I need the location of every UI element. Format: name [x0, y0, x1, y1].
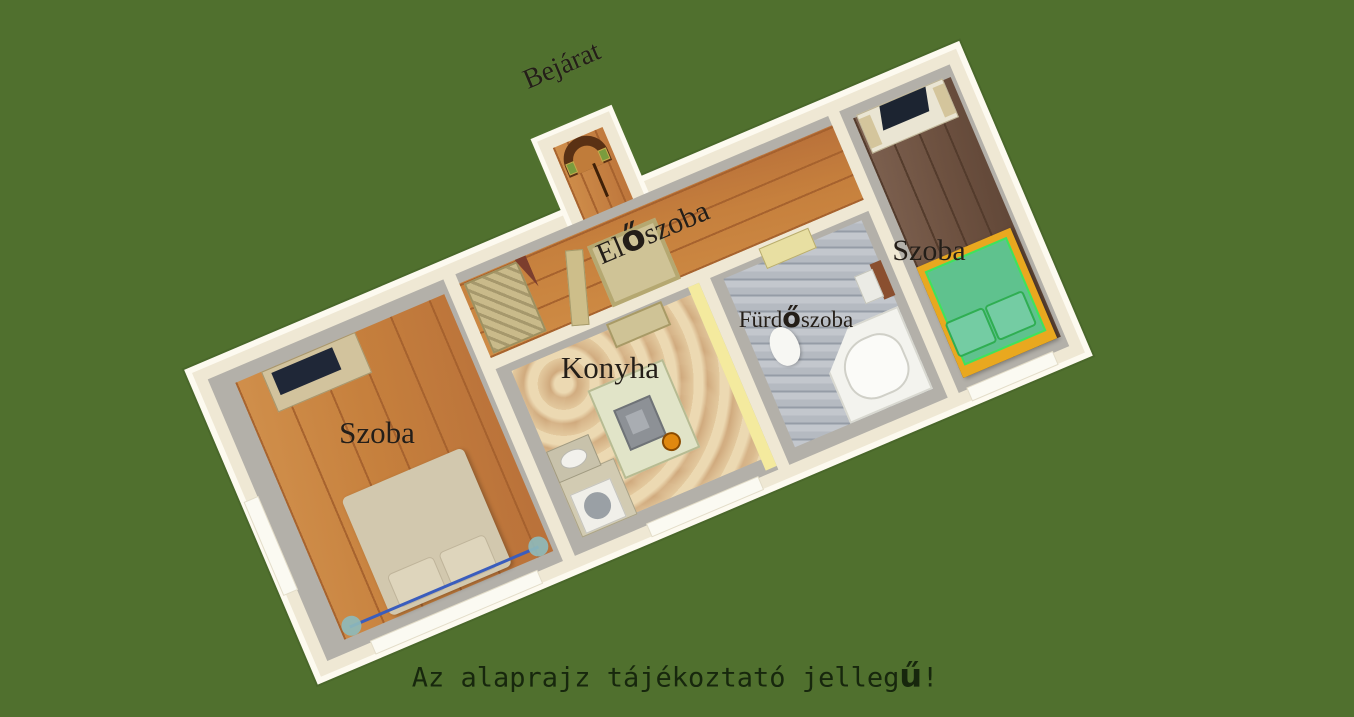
closet [464, 261, 547, 354]
bathroom-label: Fürdőszoba [739, 307, 853, 333]
desk [856, 78, 959, 153]
dresser [261, 332, 372, 412]
washing-machine [570, 478, 627, 534]
door-leaf [592, 163, 609, 197]
disclaimer-caption: Az alaprajz tájékoztató jellegű! [412, 663, 939, 694]
curtain-finial [338, 613, 364, 639]
entrance-arch-door [557, 129, 613, 178]
entrance-label: Bejárat [519, 35, 606, 96]
open-door-panel [565, 249, 590, 326]
kitchen-threshold-mat [606, 301, 671, 348]
room-right-label: Szoba [892, 234, 965, 268]
kitchen-label: Konyha [561, 350, 659, 386]
stove [613, 395, 667, 451]
dresser-top [271, 347, 341, 395]
room-left-label: Szoba [339, 415, 415, 451]
monitor [879, 87, 929, 131]
curtain-finial [525, 533, 551, 559]
floor-plan-scene: Bejárat Előszoba Szoba Fürdőszoba Konyha… [0, 0, 1354, 717]
